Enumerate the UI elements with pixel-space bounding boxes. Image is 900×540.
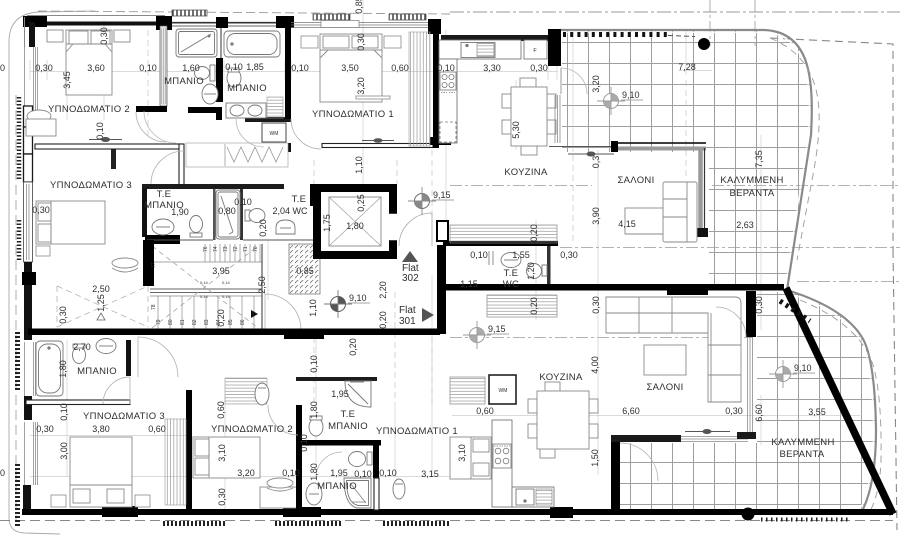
svg-text:0,10: 0,10 [354, 469, 372, 479]
svg-text:82: 82 [192, 319, 198, 325]
svg-text:0,30: 0,30 [58, 306, 68, 324]
svg-text:76: 76 [203, 246, 209, 252]
svg-text:83: 83 [204, 319, 210, 325]
svg-text:0: 0 [0, 63, 5, 73]
svg-text:0,30: 0,30 [32, 205, 50, 215]
svg-text:ΚΑΛΥΜΜΕΝΗ: ΚΑΛΥΜΜΕΝΗ [771, 437, 834, 448]
svg-text:9,10: 9,10 [349, 293, 367, 303]
svg-text:3,30: 3,30 [483, 63, 501, 73]
svg-text:Τ.Ε: Τ.Ε [157, 189, 172, 200]
svg-text:ΜΠΑΝΙΟ: ΜΠΑΝΙΟ [77, 366, 117, 377]
svg-text:7,28: 7,28 [678, 62, 696, 72]
svg-text:ΣΑΛΟΝΙ: ΣΑΛΟΝΙ [646, 382, 683, 393]
svg-text:Τ.Ε: Τ.Ε [292, 194, 307, 205]
svg-text:1,75: 1,75 [322, 214, 332, 232]
svg-text:0,10: 0,10 [282, 468, 300, 478]
svg-text:9,15: 9,15 [433, 190, 451, 200]
svg-text:3,10: 3,10 [217, 444, 227, 462]
svg-text:3,60: 3,60 [87, 63, 105, 73]
svg-text:0,14: 0,14 [200, 294, 209, 299]
svg-text:0,85: 0,85 [354, 0, 364, 14]
svg-text:9,15: 9,15 [488, 324, 506, 334]
svg-text:0,10: 0,10 [437, 63, 455, 73]
svg-text:7,35: 7,35 [754, 150, 764, 168]
svg-text:ΒΕΡΑΝΤΑ: ΒΕΡΑΝΤΑ [729, 188, 774, 199]
svg-text:1,25: 1,25 [96, 294, 106, 312]
svg-text:ΚΟΥΖΙΝΑ: ΚΟΥΖΙΝΑ [539, 372, 583, 383]
svg-text:0,3: 0,3 [591, 156, 601, 169]
svg-text:0,60: 0,60 [148, 424, 166, 434]
svg-text:3,00: 3,00 [59, 442, 69, 460]
svg-text:0,10: 0,10 [139, 63, 157, 73]
svg-text:0,10: 0,10 [95, 122, 105, 140]
svg-text:ΜΠΑΝΙΟ: ΜΠΑΝΙΟ [164, 76, 204, 87]
svg-text:0,20: 0,20 [348, 338, 358, 356]
svg-text:4,00: 4,00 [590, 356, 600, 374]
svg-text:0,85: 0,85 [296, 266, 314, 276]
svg-text:3,20: 3,20 [356, 77, 366, 95]
svg-text:ΣΑΛΟΝΙ: ΣΑΛΟΝΙ [617, 175, 654, 186]
svg-text:WC: WC [503, 279, 519, 290]
svg-text:3,15: 3,15 [421, 469, 439, 479]
svg-text:0,30: 0,30 [356, 33, 366, 51]
svg-text:WM: WM [270, 131, 279, 137]
svg-text:1,15: 1,15 [460, 279, 478, 289]
svg-text:0,10: 0,10 [470, 250, 488, 260]
svg-text:1,20: 1,20 [526, 262, 536, 280]
svg-text:0,30: 0,30 [725, 406, 743, 416]
svg-text:74: 74 [213, 246, 219, 252]
svg-text:77: 77 [151, 262, 157, 268]
svg-text:0: 0 [0, 468, 5, 478]
svg-text:70: 70 [253, 246, 259, 252]
svg-text:2,50: 2,50 [92, 284, 110, 294]
svg-text:2,50: 2,50 [257, 276, 267, 294]
svg-text:1,10: 1,10 [354, 156, 364, 174]
svg-text:0,20: 0,20 [258, 219, 268, 237]
svg-text:3,10: 3,10 [457, 444, 467, 462]
svg-text:1,85: 1,85 [246, 62, 264, 72]
svg-text:81: 81 [180, 319, 186, 325]
svg-text:80: 80 [168, 319, 174, 325]
svg-text:78: 78 [151, 304, 157, 310]
svg-text:Τ.Ε: Τ.Ε [504, 268, 519, 279]
svg-text:0,30: 0,30 [754, 296, 764, 314]
svg-text:ΥΠΝΟΔΩΜΑΤΙΟ 2: ΥΠΝΟΔΩΜΑΤΙΟ 2 [211, 424, 293, 435]
svg-text:0,60: 0,60 [476, 406, 494, 416]
svg-text:ΚΟΥΖΙΝΑ: ΚΟΥΖΙΝΑ [504, 167, 548, 178]
svg-text:ΒΕΡΑΝΤΑ: ΒΕΡΑΝΤΑ [779, 449, 824, 460]
svg-text:302: 302 [402, 273, 419, 284]
svg-text:79: 79 [156, 319, 162, 325]
svg-text:1,80: 1,80 [309, 401, 319, 419]
svg-text:1,10: 1,10 [308, 299, 318, 317]
svg-text:1,50: 1,50 [590, 449, 600, 467]
svg-text:0,20: 0,20 [378, 311, 388, 329]
svg-text:0,30: 0,30 [99, 27, 109, 45]
svg-text:0,20: 0,20 [216, 309, 226, 327]
svg-text:73: 73 [223, 246, 229, 252]
svg-text:0,25: 0,25 [356, 194, 366, 212]
svg-text:3,45: 3,45 [62, 71, 72, 89]
svg-text:Τ.Ε: Τ.Ε [341, 409, 356, 420]
svg-text:0,60: 0,60 [216, 401, 226, 419]
svg-text:0,20: 0,20 [529, 297, 539, 315]
svg-text:2,20: 2,20 [378, 281, 388, 299]
svg-text:0,30: 0,30 [35, 63, 53, 73]
svg-text:4,15: 4,15 [618, 219, 636, 229]
svg-text:9,10: 9,10 [622, 90, 640, 100]
svg-text:71: 71 [243, 246, 249, 252]
svg-text:0,30: 0,30 [36, 424, 54, 434]
svg-text:9,10: 9,10 [794, 363, 812, 373]
svg-text:6,60: 6,60 [754, 404, 764, 422]
svg-text:ΜΠΑΝΙΟ: ΜΠΑΝΙΟ [328, 421, 368, 432]
svg-text:3,95: 3,95 [212, 266, 230, 276]
svg-text:WM: WM [499, 388, 508, 394]
svg-text:301: 301 [399, 316, 416, 327]
svg-text:3,90: 3,90 [591, 207, 601, 225]
svg-text:0,10: 0,10 [291, 63, 309, 73]
svg-text:ΥΠΝΟΔΩΜΑΤΙΟ 1: ΥΠΝΟΔΩΜΑΤΙΟ 1 [312, 109, 394, 120]
svg-text:0,30: 0,30 [560, 250, 578, 260]
svg-text:85: 85 [228, 319, 234, 325]
svg-text:5,30: 5,30 [511, 121, 521, 139]
svg-text:0,14: 0,14 [200, 280, 209, 285]
svg-text:1,80: 1,80 [346, 221, 364, 231]
svg-text:6,60: 6,60 [622, 406, 640, 416]
svg-text:ΜΠΑΝΙΟ: ΜΠΑΝΙΟ [317, 481, 357, 492]
svg-text:0,10: 0,10 [309, 355, 319, 373]
svg-text:0,14: 0,14 [222, 294, 231, 299]
svg-text:3,50: 3,50 [341, 63, 359, 73]
svg-text:86: 86 [240, 319, 246, 325]
svg-text:Flat: Flat [399, 305, 416, 316]
svg-text:2,04 WC: 2,04 WC [272, 206, 308, 216]
svg-text:1,90: 1,90 [171, 207, 189, 217]
svg-text:2,63: 2,63 [736, 220, 754, 230]
svg-text:0,30: 0,30 [591, 296, 601, 314]
svg-text:0,80: 0,80 [218, 206, 236, 216]
svg-text:0,30: 0,30 [217, 488, 227, 506]
svg-text:3,20: 3,20 [591, 75, 601, 93]
svg-text:3,80: 3,80 [92, 424, 110, 434]
svg-text:ΥΠΝΟΔΩΜΑΤΙΟ 3: ΥΠΝΟΔΩΜΑΤΙΟ 3 [83, 411, 165, 422]
svg-text:1,55: 1,55 [512, 250, 530, 260]
svg-text:3,20: 3,20 [237, 468, 255, 478]
svg-text:1,60: 1,60 [182, 63, 200, 73]
svg-text:ΚΑΛΥΜΜΕΝΗ: ΚΑΛΥΜΜΕΝΗ [720, 175, 783, 186]
svg-text:72: 72 [233, 246, 239, 252]
svg-text:1,95: 1,95 [331, 389, 349, 399]
svg-text:0,10: 0,10 [379, 468, 397, 478]
svg-text:2,70: 2,70 [73, 342, 91, 352]
svg-text:ΥΠΝΟΔΩΜΑΤΙΟ 1: ΥΠΝΟΔΩΜΑΤΙΟ 1 [376, 426, 458, 437]
svg-text:1,80: 1,80 [309, 463, 319, 481]
svg-text:ΥΠΝΟΔΩΜΑΤΙΟ 2: ΥΠΝΟΔΩΜΑΤΙΟ 2 [48, 104, 130, 115]
svg-text:0,10: 0,10 [234, 197, 252, 207]
svg-text:0,10: 0,10 [299, 434, 309, 452]
svg-text:ΜΠΑΝΙΟ: ΜΠΑΝΙΟ [227, 83, 267, 94]
svg-text:0,10: 0,10 [59, 403, 69, 421]
svg-text:1,95: 1,95 [330, 468, 348, 478]
svg-text:ΥΠΝΟΔΩΜΑΤΙΟ 3: ΥΠΝΟΔΩΜΑΤΙΟ 3 [50, 180, 132, 191]
svg-text:3,55: 3,55 [808, 407, 826, 417]
svg-text:0,10: 0,10 [225, 62, 243, 72]
svg-text:1,80: 1,80 [58, 360, 68, 378]
svg-text:0,30: 0,30 [530, 63, 548, 73]
svg-text:0,14: 0,14 [222, 280, 231, 285]
svg-text:0,20: 0,20 [529, 224, 539, 242]
svg-text:0,60: 0,60 [391, 63, 409, 73]
